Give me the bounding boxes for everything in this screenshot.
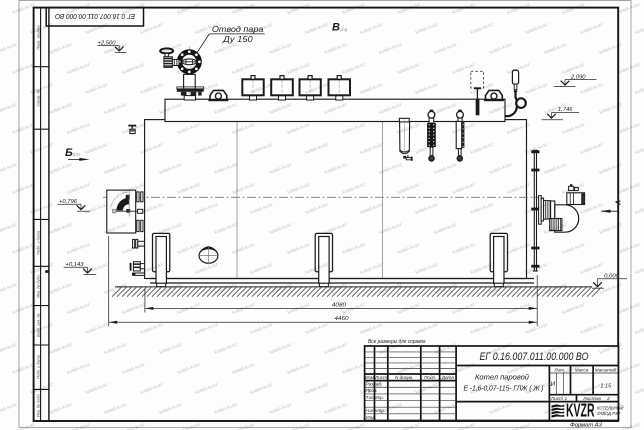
svg-text:Котел паровой: Котел паровой	[475, 374, 529, 382]
svg-text:Б: Б	[65, 147, 73, 159]
svg-text:N докум.: N докум.	[395, 375, 414, 380]
svg-text:Дата: Дата	[441, 375, 455, 380]
svg-text:Подп. и дата: Подп. и дата	[36, 355, 40, 379]
svg-text:Инв. № подл.: Инв. № подл.	[36, 393, 40, 417]
svg-text:А: А	[616, 200, 623, 206]
svg-text:И: И	[551, 381, 556, 388]
svg-text:(1:1): (1:1)	[341, 28, 348, 32]
svg-text:Инв. № дубл.: Инв. № дубл.	[36, 274, 40, 297]
svg-text:Масштаб: Масштаб	[595, 368, 617, 373]
svg-text:Лист: Лист	[374, 375, 387, 380]
svg-text:Подп.: Подп.	[424, 375, 436, 380]
svg-text:4460: 4460	[334, 316, 349, 322]
svg-text:В: В	[332, 21, 340, 33]
svg-text:Подп. и дата: Подп. и дата	[36, 231, 40, 255]
svg-text:Утв.: Утв.	[366, 415, 376, 420]
svg-text:4080: 4080	[332, 302, 347, 308]
svg-text:2: 2	[606, 396, 610, 402]
svg-text:Изм: Изм	[365, 375, 374, 380]
svg-text:(1:1): (1:1)	[73, 153, 80, 157]
svg-text:Т.контр.: Т.контр.	[366, 395, 385, 400]
svg-text:KVZR: KVZR	[566, 401, 595, 421]
svg-text:Ду 150: Ду 150	[222, 34, 253, 44]
